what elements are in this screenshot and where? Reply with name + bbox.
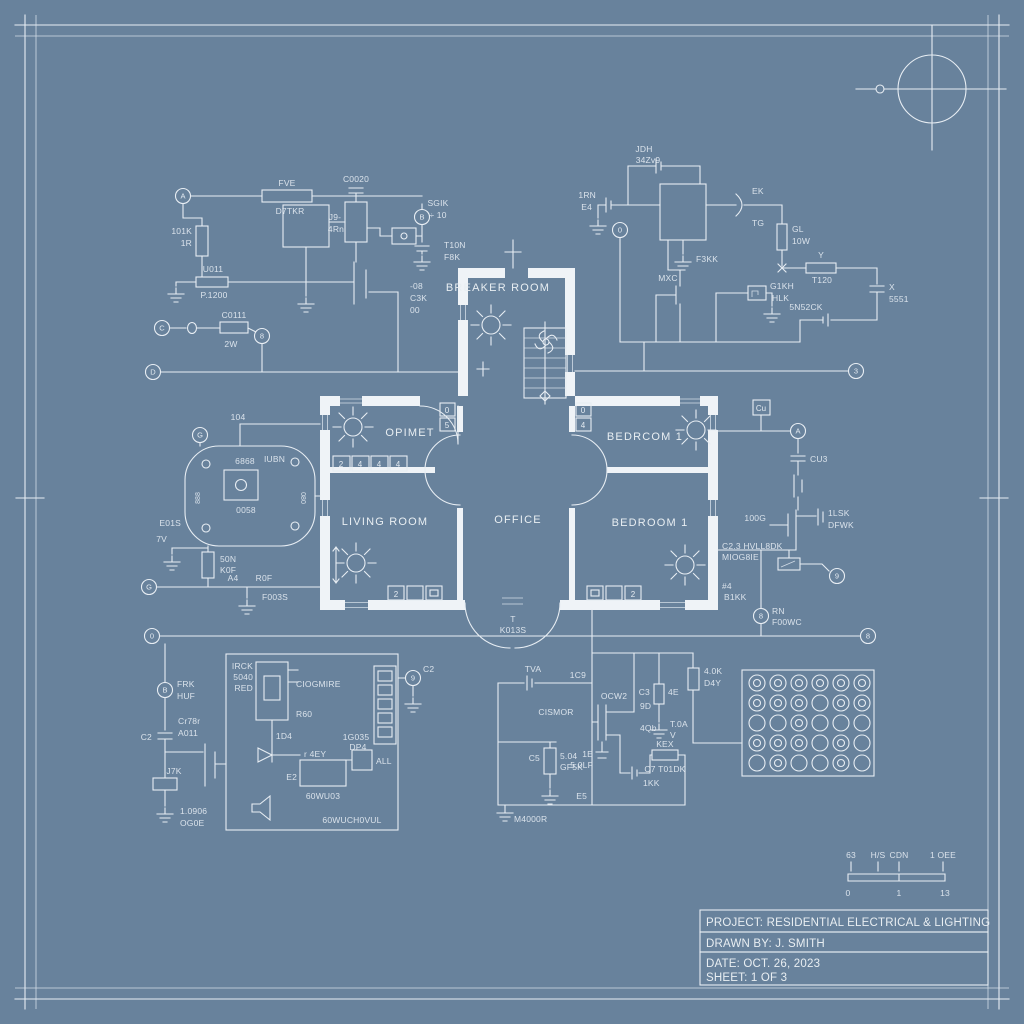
circuit-top-right: JDH 34Zv9 1RN E4 EK TG F3KK GL 10W MXC G… bbox=[578, 144, 908, 371]
svg-text:0: 0 bbox=[150, 632, 154, 641]
label: T120 bbox=[812, 275, 832, 285]
circuit-top-left: FVE D7TKR C0020 101K 1R J9- 4Rn SGIK ÷ 1… bbox=[155, 174, 466, 372]
svg-text:8: 8 bbox=[759, 612, 763, 621]
label: 1D4 bbox=[276, 731, 292, 741]
label: E4 bbox=[581, 202, 592, 212]
staircase bbox=[524, 322, 566, 404]
box-glyph: 0 bbox=[445, 406, 450, 415]
label: F003S bbox=[262, 592, 288, 602]
label: 6868 bbox=[235, 456, 255, 466]
label: 104 bbox=[231, 412, 246, 422]
label: C0020 bbox=[343, 174, 369, 184]
label: 1RN bbox=[578, 190, 596, 200]
blueprint-canvas: 2 4 4 4 0 5 0 4 2 2 BREAKER ROOM OPIMET … bbox=[0, 0, 1024, 1024]
label: Y bbox=[818, 250, 824, 260]
label: B1KK bbox=[724, 592, 747, 602]
label: 888 bbox=[195, 492, 202, 504]
label: EK bbox=[752, 186, 764, 196]
label: 4Rn bbox=[328, 224, 344, 234]
label: HLK bbox=[772, 293, 789, 303]
label: r 4EY bbox=[304, 749, 326, 759]
blueprint-page: 2 4 4 4 0 5 0 4 2 2 BREAKER ROOM OPIMET … bbox=[0, 0, 1024, 1024]
label: X bbox=[889, 282, 895, 292]
ground-icon bbox=[298, 298, 314, 312]
label: DFWK bbox=[828, 520, 854, 530]
label: T.0A bbox=[670, 719, 688, 729]
label: FRK bbox=[177, 679, 195, 689]
label: 101K bbox=[171, 226, 192, 236]
switch-glyph: 4 bbox=[358, 460, 363, 469]
terminal-node: C bbox=[155, 321, 170, 336]
terminal-node: 8 bbox=[861, 629, 876, 644]
label: -08 bbox=[410, 281, 423, 291]
label: 2W bbox=[224, 339, 237, 349]
label: F3KK bbox=[696, 254, 718, 264]
label: 5040 bbox=[233, 672, 253, 682]
label: MXC bbox=[658, 273, 678, 283]
label: R60 bbox=[296, 709, 312, 719]
terminal-node: A bbox=[791, 424, 806, 439]
label: 60WU03 bbox=[306, 791, 340, 801]
label: TVA bbox=[525, 664, 542, 674]
terminal-node: 9 bbox=[830, 569, 845, 584]
label: 4.0K bbox=[704, 666, 722, 676]
switch-glyph: 4 bbox=[377, 460, 382, 469]
junction-panel: 4.0K D4Y bbox=[688, 653, 874, 776]
scale-label: 1 bbox=[897, 888, 902, 898]
terminal-node: G bbox=[193, 428, 208, 443]
label: 9D bbox=[640, 701, 651, 711]
title-project: PROJECT: RESIDENTIAL ELECTRICAL & LIGHTI… bbox=[706, 917, 990, 929]
svg-text:8: 8 bbox=[260, 332, 264, 341]
label: P.1200 bbox=[200, 290, 227, 300]
label: T10N bbox=[444, 240, 466, 250]
living-outlets: 2 bbox=[388, 586, 442, 600]
label: 100G bbox=[744, 513, 766, 523]
room-label-closet: OPIMET bbox=[385, 427, 434, 439]
label: C2 bbox=[423, 664, 434, 674]
label: U011 bbox=[203, 264, 224, 274]
wall2-boxes: 0 4 bbox=[576, 403, 591, 431]
ground-icon bbox=[157, 808, 173, 822]
label: M4000R bbox=[514, 814, 547, 824]
terminal-node: 8 bbox=[754, 609, 769, 624]
svg-text:C: C bbox=[159, 324, 165, 333]
svg-text:A: A bbox=[795, 427, 800, 436]
ground-icon bbox=[164, 556, 180, 570]
label: 1KK bbox=[643, 778, 660, 788]
svg-text:G: G bbox=[146, 583, 152, 592]
label: Cu bbox=[756, 404, 766, 413]
label: C5 bbox=[529, 753, 540, 763]
label: C0111 bbox=[222, 310, 247, 320]
label: MIOG8IE bbox=[722, 552, 759, 562]
svg-text:A: A bbox=[180, 192, 185, 201]
title-block: PROJECT: RESIDENTIAL ELECTRICAL & LIGHTI… bbox=[700, 910, 990, 985]
scale-label: 63 bbox=[846, 850, 856, 860]
room-label-living: LIVING ROOM bbox=[342, 516, 429, 528]
label: 5N52CK bbox=[789, 302, 822, 312]
svg-text:G: G bbox=[197, 431, 203, 440]
control-device: 104 6868 IUBN 0058 888 080 E01S 7V 50N K… bbox=[156, 412, 320, 587]
label: ALL bbox=[376, 756, 392, 766]
label: IUBN bbox=[264, 454, 285, 464]
switch-glyph: 2 bbox=[339, 460, 344, 469]
label: K0F bbox=[220, 565, 236, 575]
switch-glyph: 4 bbox=[396, 460, 401, 469]
label: C3K bbox=[410, 293, 427, 303]
box-glyph: 5 bbox=[445, 421, 450, 430]
ground-icon bbox=[764, 308, 780, 322]
label: 5.0LF bbox=[570, 760, 593, 770]
label: #4 bbox=[722, 581, 732, 591]
label: IRCK bbox=[232, 661, 253, 671]
label: E01S bbox=[159, 518, 181, 528]
label: 4Qb bbox=[640, 723, 657, 733]
label: R0F bbox=[256, 573, 273, 583]
label: CISMOR bbox=[538, 707, 573, 717]
ground-icon bbox=[675, 256, 691, 270]
title-drawn-by: DRAWN BY: J. SMITH bbox=[706, 938, 825, 950]
label: F00WC bbox=[772, 617, 802, 627]
svg-text:8: 8 bbox=[866, 632, 870, 641]
room-label-breaker: BREAKER ROOM bbox=[446, 282, 550, 294]
label: 1LSK bbox=[828, 508, 850, 518]
terminal-node: B bbox=[158, 683, 173, 698]
label: C2 bbox=[141, 732, 152, 742]
title-sheet: SHEET: 1 OF 3 bbox=[706, 972, 787, 984]
label: E5 bbox=[576, 791, 587, 801]
terminal-node: 9 bbox=[406, 671, 421, 686]
box-glyph: 0 bbox=[581, 406, 586, 415]
label: TG bbox=[752, 218, 764, 228]
terminal-node: 0 bbox=[613, 223, 628, 238]
label: GL bbox=[792, 224, 804, 234]
ground-icon bbox=[590, 220, 606, 234]
svg-text:3: 3 bbox=[854, 367, 858, 376]
room-label-bedroom-top: BEDRCOM 1 bbox=[607, 431, 683, 443]
floor-plan: 2 4 4 4 0 5 0 4 2 2 BREAKER ROOM OPIMET … bbox=[320, 240, 718, 648]
label: A011 bbox=[178, 728, 198, 738]
label: 1G035 bbox=[343, 732, 370, 742]
ceiling-light-icon bbox=[676, 410, 716, 450]
label: Cr78r bbox=[178, 716, 200, 726]
scale-label: CDN bbox=[889, 850, 908, 860]
fixture-cross-icon bbox=[477, 362, 489, 376]
label: D7TKR bbox=[276, 206, 305, 216]
label: ÷ 10 bbox=[429, 210, 446, 220]
circuit-bottom-left: FRK HUF C2 Cr78r A011 J7K 1.0906 OG0E IR… bbox=[141, 644, 435, 830]
svg-text:9: 9 bbox=[835, 572, 839, 581]
ground-icon bbox=[239, 600, 255, 614]
label: C3 bbox=[639, 687, 650, 697]
circuit-right: Cu CU3 100G 1LSK DFWK C2.3 HVLL8DK MIOG8… bbox=[718, 400, 854, 636]
label: HUF bbox=[177, 691, 195, 701]
entry-tag: T bbox=[510, 614, 515, 624]
door-arcs bbox=[420, 240, 607, 648]
scale-label: 1 OEE bbox=[930, 850, 956, 860]
label: 34Zv9 bbox=[636, 155, 661, 165]
label: 10W bbox=[792, 236, 810, 246]
ground-icon bbox=[497, 807, 513, 821]
label: 080 bbox=[299, 492, 306, 504]
svg-text:9: 9 bbox=[411, 674, 415, 683]
room-label-bedroom-bottom: BEDROOM 1 bbox=[612, 517, 689, 529]
svg-text:B: B bbox=[162, 686, 167, 695]
label: 1C9 bbox=[570, 670, 586, 680]
label: CU3 bbox=[810, 454, 828, 464]
label: DP4 bbox=[349, 742, 366, 752]
outlet-glyph: 2 bbox=[631, 590, 636, 599]
label: 50N bbox=[220, 554, 236, 564]
sheet-border bbox=[15, 15, 1009, 1009]
svg-text:D: D bbox=[150, 368, 156, 377]
label: J9- bbox=[329, 212, 341, 222]
label: OCW2 bbox=[601, 691, 627, 701]
terminal-node: A bbox=[176, 189, 191, 204]
ground-icon bbox=[405, 698, 421, 712]
terminal-node: D bbox=[146, 365, 161, 380]
ground-icon bbox=[168, 288, 184, 302]
north-symbol-icon bbox=[856, 26, 1006, 150]
ceiling-fan-icon bbox=[535, 331, 557, 353]
label: 4E bbox=[668, 687, 679, 697]
title-date: DATE: OCT. 26, 2023 bbox=[706, 958, 820, 970]
ground-icon bbox=[414, 256, 430, 270]
terminal-node: B bbox=[415, 210, 430, 225]
label: OG0E bbox=[180, 818, 205, 828]
scale-label: 13 bbox=[940, 888, 950, 898]
label: 00 bbox=[410, 305, 420, 315]
label: RN bbox=[772, 606, 785, 616]
double-arrow-icon bbox=[333, 547, 339, 583]
label: FVE bbox=[278, 178, 295, 188]
ground-icon bbox=[542, 790, 558, 804]
box-glyph: 4 bbox=[581, 421, 586, 430]
svg-text:B: B bbox=[419, 213, 424, 222]
label: RED bbox=[234, 683, 253, 693]
label: 1E bbox=[582, 749, 593, 759]
label: D4Y bbox=[704, 678, 721, 688]
bedroom-outlets: 2 bbox=[587, 586, 641, 600]
terminal-node: G bbox=[142, 580, 157, 595]
outlet-glyph: 2 bbox=[394, 590, 399, 599]
circuit-bottom-mid: TVA 1C9 OCW2 CISMOR 9D 4Qb C3 4E T.0A V … bbox=[497, 610, 693, 824]
label: CIOGMIRE bbox=[296, 679, 341, 689]
label: KEX bbox=[656, 739, 674, 749]
svg-text:0: 0 bbox=[618, 226, 622, 235]
scale-label: 0 bbox=[846, 888, 851, 898]
label: 60WUCH0VUL bbox=[322, 815, 381, 825]
ceiling-light-icon bbox=[333, 407, 373, 447]
label: JDH bbox=[635, 144, 652, 154]
ceiling-light-icon bbox=[336, 543, 376, 583]
scale-bar: 63 H/S CDN 1 OEE 0 1 13 bbox=[846, 850, 957, 898]
label: J7K bbox=[166, 766, 181, 776]
label: F8K bbox=[444, 252, 460, 262]
label: 7V bbox=[156, 534, 167, 544]
ceiling-light-icon bbox=[471, 305, 511, 345]
terminal-node: 8 bbox=[255, 329, 270, 344]
label: G1KH bbox=[770, 281, 794, 291]
terminal-node: 3 bbox=[849, 364, 864, 379]
ceiling-light-icon bbox=[665, 545, 705, 585]
label: 5551 bbox=[889, 294, 909, 304]
label: C7 T01DK bbox=[644, 764, 685, 774]
label: SGIK bbox=[427, 198, 448, 208]
entry-code: K013S bbox=[500, 625, 527, 635]
label: 0058 bbox=[236, 505, 256, 515]
label: 1R bbox=[181, 238, 192, 248]
label: C2.3 HVLL8DK bbox=[722, 541, 783, 551]
terminal-node: 0 bbox=[145, 629, 160, 644]
room-label-office: OFFICE bbox=[494, 514, 542, 526]
scale-label: H/S bbox=[871, 850, 886, 860]
label: 1.0906 bbox=[180, 806, 207, 816]
label: E2 bbox=[286, 772, 297, 782]
